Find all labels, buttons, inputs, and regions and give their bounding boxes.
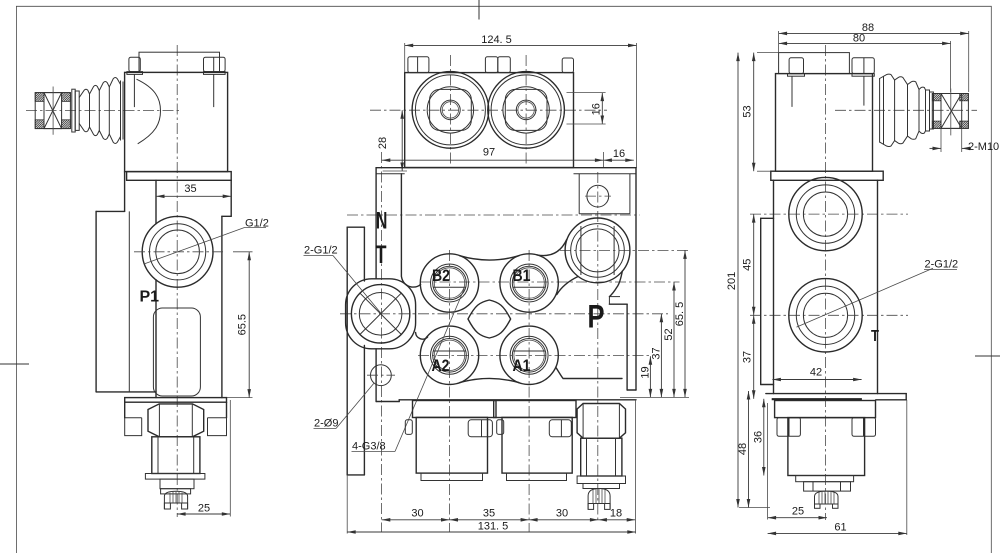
svg-text:35: 35: [483, 508, 495, 520]
svg-text:36: 36: [752, 431, 764, 443]
svg-text:2-G1/2: 2-G1/2: [925, 259, 959, 271]
svg-text:25: 25: [792, 506, 804, 518]
svg-text:37: 37: [742, 351, 754, 363]
svg-text:28: 28: [377, 137, 389, 149]
svg-text:37: 37: [651, 347, 663, 359]
svg-text:97: 97: [483, 147, 495, 159]
svg-text:65. 5: 65. 5: [674, 302, 686, 326]
svg-text:30: 30: [411, 508, 423, 520]
svg-text:124. 5: 124. 5: [481, 34, 512, 46]
svg-text:B2: B2: [432, 267, 450, 285]
svg-text:2-M10: 2-M10: [968, 141, 999, 153]
svg-text:61: 61: [834, 522, 846, 534]
svg-text:65.5: 65.5: [237, 314, 249, 335]
svg-text:A1: A1: [513, 357, 531, 375]
svg-text:N: N: [376, 208, 388, 235]
svg-text:80: 80: [853, 32, 865, 44]
svg-text:35: 35: [184, 183, 196, 195]
svg-text:131. 5: 131. 5: [478, 521, 509, 533]
svg-text:G1/2: G1/2: [245, 217, 269, 229]
svg-text:53: 53: [742, 105, 754, 117]
svg-text:T: T: [871, 328, 879, 345]
svg-text:25: 25: [198, 503, 210, 515]
svg-text:P: P: [588, 299, 605, 335]
svg-text:2-Ø9: 2-Ø9: [314, 418, 338, 430]
svg-text:4-G3/8: 4-G3/8: [352, 441, 386, 453]
svg-text:42: 42: [810, 367, 822, 379]
svg-text:16: 16: [613, 148, 625, 160]
svg-text:30: 30: [556, 508, 568, 520]
svg-text:16: 16: [591, 103, 603, 115]
svg-text:19: 19: [640, 366, 652, 378]
svg-text:B1: B1: [513, 267, 531, 285]
svg-text:201: 201: [726, 272, 738, 290]
svg-text:48: 48: [737, 443, 749, 455]
svg-text:45: 45: [742, 259, 754, 271]
svg-text:P1: P1: [140, 289, 160, 306]
svg-text:52: 52: [663, 328, 675, 340]
svg-text:2-G1/2: 2-G1/2: [304, 245, 338, 257]
svg-text:18: 18: [610, 508, 622, 520]
svg-text:T: T: [376, 241, 387, 269]
